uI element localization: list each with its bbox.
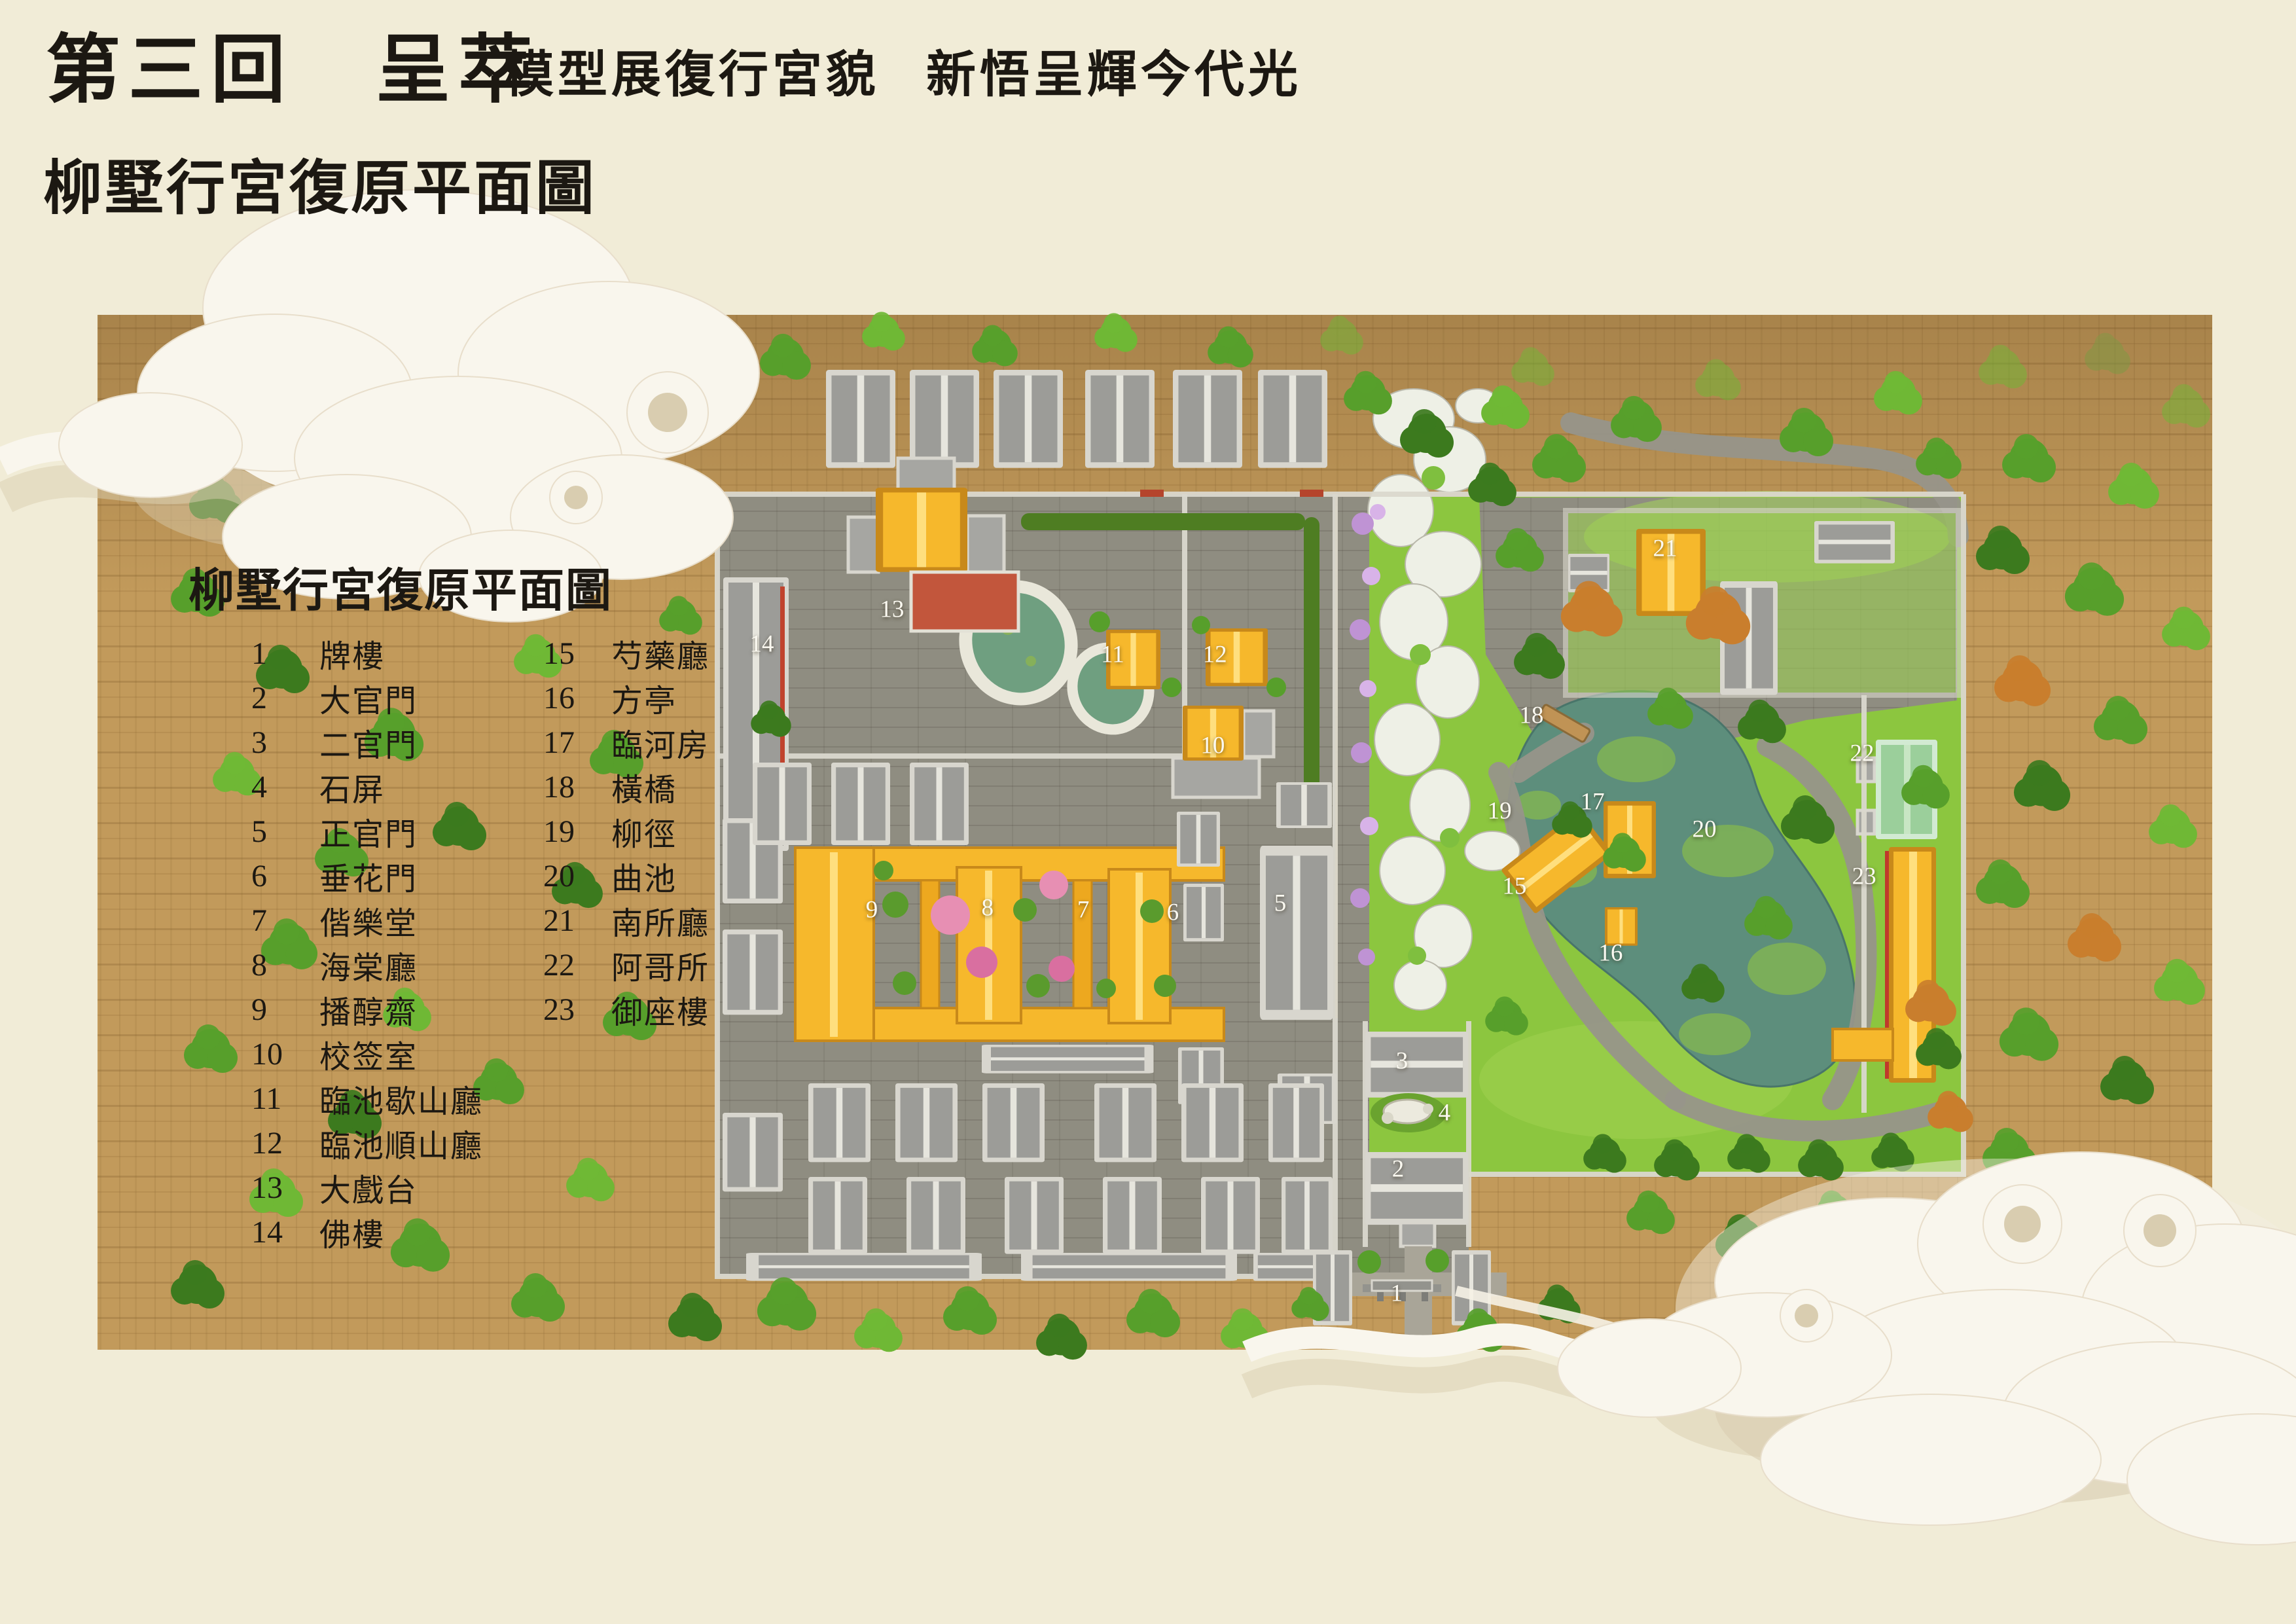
legend-item-number: 4: [251, 769, 319, 805]
golden-courtyard: [795, 848, 1224, 1041]
legend-item-name: 曲池: [611, 853, 677, 899]
legend-col-1: 1牌樓2大官門3二官門4石屏5正官門6垂花門7偕樂堂8海棠廳9播醇齋10校签室1…: [251, 631, 483, 1254]
legend-item-number: 22: [543, 947, 611, 983]
legend-item-name: 方亭: [611, 675, 677, 721]
legend-item-number: 18: [543, 769, 611, 805]
legend-item-22: 22阿哥所: [543, 943, 709, 987]
header-subtitle-left: 模型展復行宮貌: [504, 34, 880, 106]
legend-item-name: 南所廳: [611, 897, 709, 943]
legend-item-number: 10: [251, 1036, 319, 1072]
page-caption: 柳墅行宮復原平面圖: [43, 140, 597, 225]
legend-item-name: 臨池順山廳: [319, 1120, 483, 1166]
legend-item-13: 13大戲台: [251, 1165, 483, 1210]
page-header: 第三回 呈萃: [46, 9, 541, 117]
legend-item-name: 海棠廳: [319, 942, 418, 988]
legend-item-number: 21: [543, 903, 611, 939]
legend-item-18: 18橫橋: [543, 765, 709, 809]
legend-item-2: 2大官門: [251, 676, 483, 720]
legend-item-number: 14: [251, 1214, 319, 1250]
legend-item-number: 8: [251, 947, 319, 983]
legend-item-name: 校签室: [319, 1031, 418, 1077]
legend-item-number: 9: [251, 992, 319, 1028]
legend-item-name: 阿哥所: [611, 942, 709, 988]
legend-item-number: 6: [251, 858, 319, 894]
legend-item-5: 5正官門: [251, 809, 483, 854]
legend-item-number: 13: [251, 1170, 319, 1206]
legend-item-number: 15: [543, 636, 611, 672]
legend-item-name: 牌樓: [319, 630, 385, 676]
legend-item-16: 16方亭: [543, 676, 709, 720]
legend-item-number: 3: [251, 725, 319, 761]
legend-item-name: 御座樓: [611, 986, 709, 1032]
legend-item-number: 1: [251, 636, 319, 672]
legend-item-name: 橫橋: [611, 764, 677, 810]
chapter-title: 第三回 呈萃: [46, 9, 541, 117]
legend-item-number: 2: [251, 680, 319, 716]
legend-item-name: 大戲台: [319, 1164, 418, 1210]
legend-item-19: 19柳徑: [543, 809, 709, 854]
legend-item-20: 20曲池: [543, 854, 709, 898]
legend-item-10: 10校签室: [251, 1032, 483, 1076]
legend-item-6: 6垂花門: [251, 854, 483, 898]
legend-item-number: 16: [543, 680, 611, 716]
legend-item-17: 17臨河房: [543, 720, 709, 765]
legend-item-name: 佛樓: [319, 1209, 385, 1255]
legend-item-23: 23御座樓: [543, 987, 709, 1032]
legend-item-21: 21南所廳: [543, 898, 709, 943]
legend-item-name: 臨池歇山廳: [319, 1075, 483, 1121]
legend-item-15: 15芍藥廳: [543, 631, 709, 676]
legend-item-12: 12臨池順山廳: [251, 1121, 483, 1165]
legend-item-name: 播醇齋: [319, 986, 418, 1032]
legend-item-number: 23: [543, 992, 611, 1028]
legend-title: 柳墅行宮復原平面圖: [188, 554, 613, 620]
legend-item-name: 臨河房: [611, 719, 709, 765]
legend-item-name: 大官門: [319, 675, 418, 721]
legend-item-3: 3二官門: [251, 720, 483, 765]
legend-item-name: 柳徑: [611, 808, 677, 854]
legend-item-1: 1牌樓: [251, 631, 483, 676]
legend-item-number: 17: [543, 725, 611, 761]
legend: 柳墅行宮復原平面圖 1牌樓2大官門3二官門4石屏5正官門6垂花門7偕樂堂8海棠廳…: [188, 554, 613, 620]
legend-item-name: 正官門: [319, 808, 418, 854]
legend-item-name: 垂花門: [319, 853, 418, 899]
legend-item-7: 7偕樂堂: [251, 898, 483, 943]
legend-item-4: 4石屏: [251, 765, 483, 809]
legend-item-number: 12: [251, 1125, 319, 1161]
poster-page: 第三回 呈萃 模型展復行宮貌 新悟呈輝今代光 柳墅行宮復原平面圖 柳墅行宮復原平…: [0, 0, 2296, 1624]
legend-item-9: 9播醇齋: [251, 987, 483, 1032]
legend-item-number: 5: [251, 814, 319, 850]
legend-item-number: 19: [543, 814, 611, 850]
legend-item-name: 二官門: [319, 719, 418, 765]
south-hall-compound: [1566, 511, 1958, 695]
legend-item-14: 14佛樓: [251, 1210, 483, 1254]
legend-item-name: 芍藥廳: [611, 630, 709, 676]
legend-item-name: 石屏: [319, 764, 385, 810]
legend-item-name: 偕樂堂: [319, 897, 418, 943]
legend-item-8: 8海棠廳: [251, 943, 483, 987]
header-subtitle-right: 新悟呈輝今代光: [926, 34, 1302, 106]
legend-item-number: 11: [251, 1081, 319, 1117]
legend-col-2: 15芍藥廳16方亭17臨河房18橫橋19柳徑20曲池21南所廳22阿哥所23御座…: [543, 631, 709, 1254]
legend-item-number: 20: [543, 858, 611, 894]
legend-item-number: 7: [251, 903, 319, 939]
legend-item-11: 11臨池歇山廳: [251, 1076, 483, 1121]
legend-columns: 1牌樓2大官門3二官門4石屏5正官門6垂花門7偕樂堂8海棠廳9播醇齋10校签室1…: [251, 631, 709, 1254]
